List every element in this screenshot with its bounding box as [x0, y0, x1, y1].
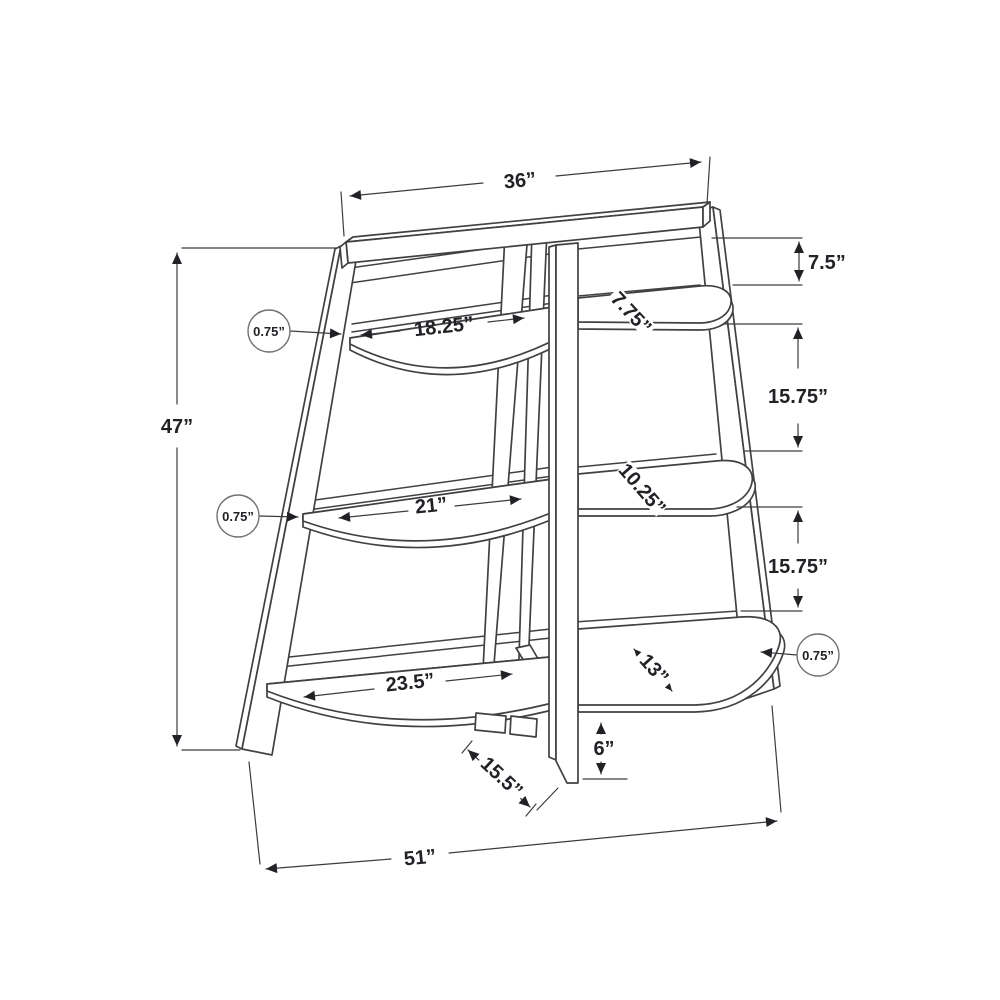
- center-front-post: [549, 243, 578, 783]
- dim-top-width-label: 36”: [503, 168, 537, 193]
- shelf-middle-right: [578, 461, 755, 516]
- dim-foot-clearance-label: 6”: [593, 738, 614, 760]
- callout-thickness-middle-left-label: 0.75”: [222, 509, 254, 524]
- dim-spacing-lower-label: 15.75”: [768, 556, 828, 578]
- callout-thickness-bottom-right-label: 0.75”: [802, 648, 834, 663]
- dim-overall-height-label: 47”: [161, 416, 193, 438]
- bottom-bracket: [475, 713, 537, 737]
- shelf-dimension-diagram: 36” 47” 51” 7.5”: [0, 0, 1000, 1000]
- dim-shelf-middle-width-label: 21”: [414, 493, 448, 518]
- dim-foot-clearance: 6”: [583, 723, 627, 779]
- shelf-bottom-right: [578, 617, 785, 712]
- dim-top-offset: 7.5”: [712, 238, 846, 285]
- dim-base-width-label: 51”: [403, 846, 437, 871]
- callout-thickness-top-left-label: 0.75”: [253, 324, 285, 339]
- dim-base-depth: 15.5”: [462, 741, 558, 816]
- dim-top-offset-label: 7.5”: [808, 252, 846, 274]
- diagram-canvas: 36” 47” 51” 7.5”: [0, 0, 1000, 1000]
- dim-spacing-upper-label: 15.75”: [768, 386, 828, 408]
